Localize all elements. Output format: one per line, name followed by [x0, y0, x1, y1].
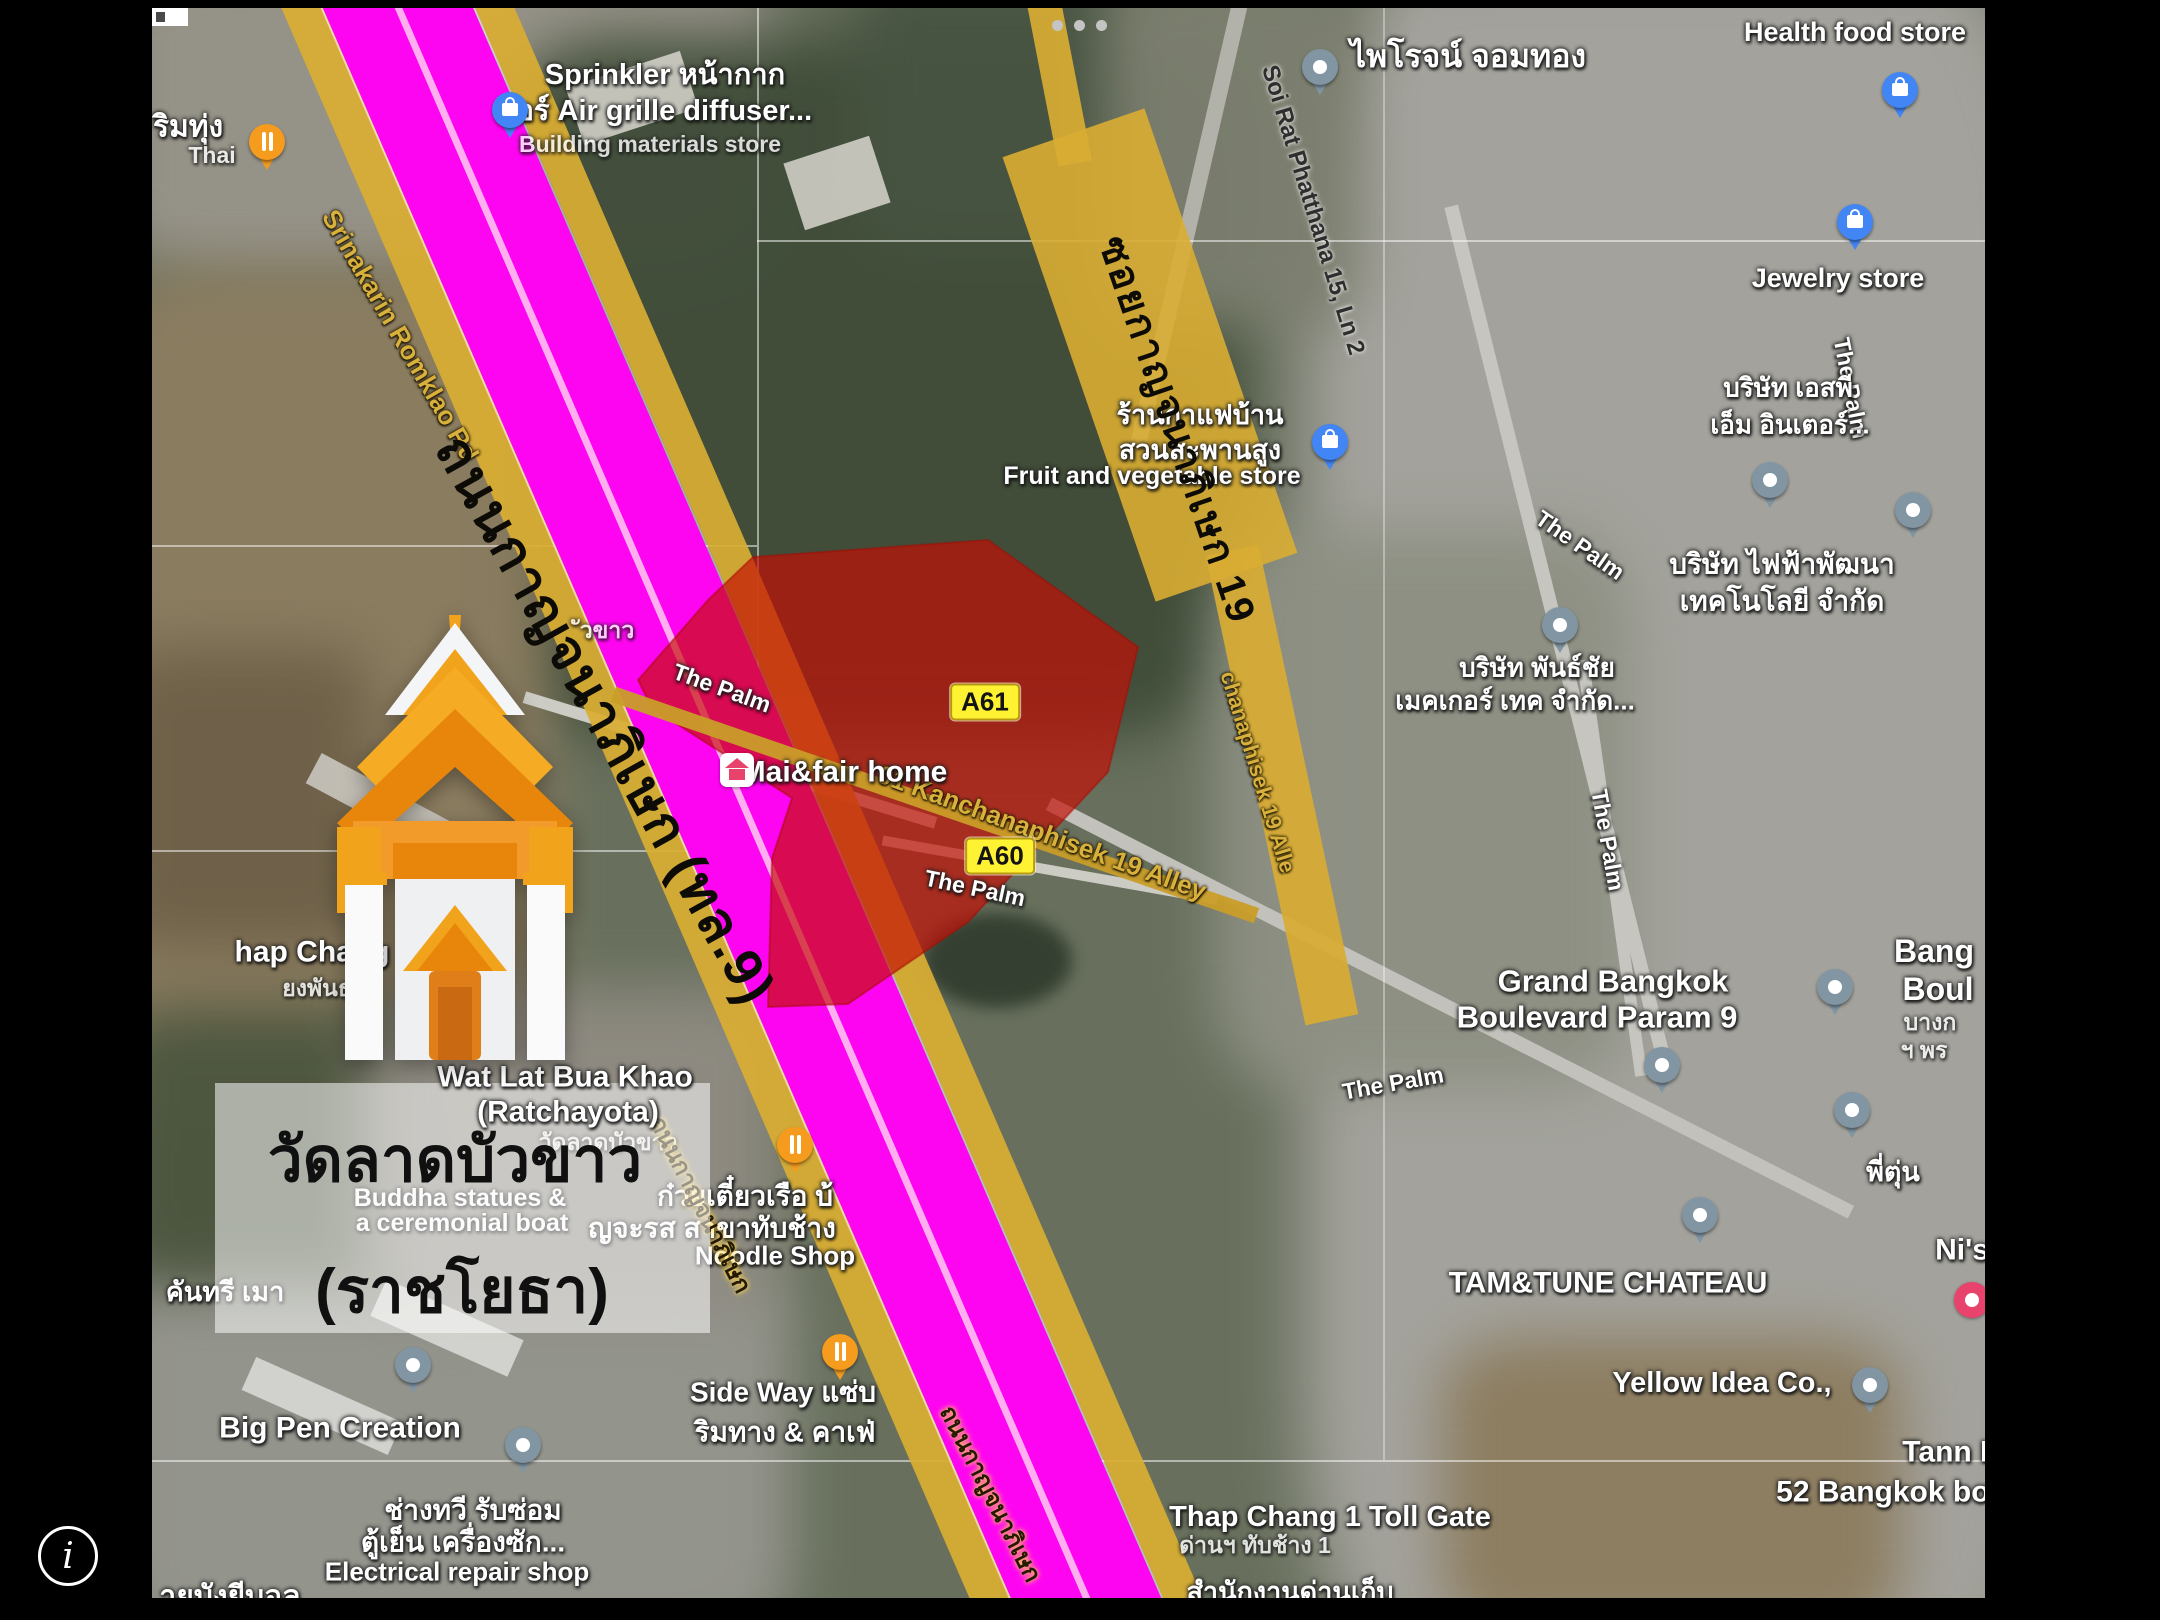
restaurant-pin-icon: [249, 124, 285, 170]
poi-label-phan-chai-1: บริษัท พันธ์ชัย: [1459, 654, 1615, 681]
poi-label-tam-tune: TAM&TUNE CHATEAU: [1449, 1267, 1768, 1299]
place-pin-icon: [1302, 49, 1338, 95]
poi-label-grand-bangkok-1: Grand Bangkok: [1498, 966, 1729, 999]
store-pin-icon: [1882, 72, 1918, 118]
poi-label-bangkok-blvd-1: Bang: [1894, 935, 1974, 969]
home-pin-icon: [720, 753, 754, 787]
place-pin-icon: [1852, 1367, 1888, 1413]
poi-label-bang-yi-bon: ายบังยีบอล: [159, 1581, 300, 1598]
place-pin-icon: [1895, 492, 1931, 538]
poi-label-fruit-store-1: ร้านกาแฟบ้าน: [1117, 401, 1284, 429]
poi-label-phan-chai-2: เมคเกอร์ เทค จำกัด...: [1395, 687, 1635, 714]
poi-label-toll-office: สำนักงานด่านเก็บ: [1186, 1578, 1393, 1598]
poi-label-wat-1: Wat Lat Bua Khao: [437, 1061, 693, 1093]
screenshot-root: Srinakarin Romklao Rd Soi Rat Phatthana …: [0, 0, 2160, 1620]
poi-label-sprinkler-3: Building materials store: [519, 132, 781, 156]
poi-label-fai-fa-1: บริษัท ไฟฟ้าพัฒนา: [1669, 549, 1895, 578]
pink-place-pin-icon: [1954, 1282, 1985, 1318]
poi-label-sp-inter-2: เอ็ม อินเตอร์...: [1710, 411, 1869, 438]
place-pin-icon: [505, 1427, 541, 1473]
place-pin-icon: [1542, 607, 1578, 653]
restaurant-pin-icon: [777, 1127, 813, 1173]
poi-label-chang-thawi-1: ช่างทวี รับซ่อม: [384, 1495, 561, 1524]
place-pin-icon: [395, 1347, 431, 1393]
plot-badge-a61: A61: [950, 684, 1020, 721]
poi-label-fruit-store-3: Fruit and vegetable store: [1003, 463, 1300, 489]
poi-label-fai-fa-2: เทคโนโลยี จำกัด: [1680, 586, 1885, 615]
poi-label-pee-tun: พี่ตุ่น: [1866, 1158, 1920, 1186]
poi-label-bangkok-blvd-2: Boul: [1902, 973, 1973, 1007]
poi-label-chang-thawi-2: ตู้เย็น เครื่องซัก...: [361, 1527, 565, 1556]
poi-label-health-food: Health food store: [1744, 18, 1966, 46]
poi-label-thap-chang-toll-thai: ด่านฯ ทับช้าง 1: [1179, 1533, 1331, 1557]
plot-badge-a60: A60: [965, 838, 1035, 875]
poi-label-tann-1: Tann H: [1902, 1436, 1985, 1468]
poi-label-grand-bangkok-2: Boulevard Param 9: [1457, 1002, 1738, 1035]
poi-label-nis: Ni's: [1935, 1234, 1985, 1266]
place-pin-icon: [1752, 462, 1788, 508]
callout-title-line2: (ราชโยธา): [315, 1242, 609, 1340]
poi-label-rim-thung-en: Thai: [188, 143, 235, 167]
poi-label-side-way-2: ริมทาง & คาเฟ่: [695, 1417, 876, 1446]
poi-label-thap-chang-toll: Thap Chang 1 Toll Gate: [1169, 1502, 1491, 1532]
poi-label-sprinkler-1: Sprinkler หน้ากาก: [545, 60, 785, 90]
callout-title-line1: วัดลาดบัวขาว: [268, 1111, 642, 1209]
poi-label-sprinkler-2: แอร์ Air grille diffuser...: [498, 96, 812, 126]
poi-label-jewelry: Jewelry store: [1752, 264, 1925, 292]
place-pin-icon: [1834, 1092, 1870, 1138]
poi-label-big-pen: Big Pen Creation: [219, 1412, 461, 1444]
poi-label-side-way-1: Side Way แซ่บ: [690, 1377, 876, 1406]
place-pin-icon: [1817, 969, 1853, 1015]
restaurant-pin-icon: [822, 1334, 858, 1380]
place-pin-icon: [1682, 1197, 1718, 1243]
info-button[interactable]: i: [38, 1526, 98, 1586]
poi-label-bangkok-blvd-3: บางก: [1904, 1010, 1957, 1034]
poi-label-yellow-idea: Yellow Idea Co.,: [1612, 1368, 1831, 1398]
store-pin-icon: [492, 92, 528, 138]
poi-label-tann-2: 52 Bangkok bou: [1776, 1476, 1985, 1508]
poi-label-rim-thung: ริมทุ่ง: [153, 111, 223, 143]
store-pin-icon: [1837, 204, 1873, 250]
poi-label-mai-fair: Mai&fair home: [741, 756, 948, 788]
more-options-icon[interactable]: [1052, 17, 1122, 39]
satellite-map[interactable]: Srinakarin Romklao Rd Soi Rat Phatthana …: [152, 8, 1985, 1598]
place-pin-icon: [1644, 1047, 1680, 1093]
temple-icon: [335, 615, 575, 1060]
store-pin-icon: [1312, 424, 1348, 470]
poi-label-phairot: ไพโรจน์ จอมทอง: [1350, 40, 1586, 74]
viewer-corner-tab: [152, 8, 188, 26]
poi-label-chang-thawi-3: Electrical repair shop: [325, 1558, 589, 1585]
poi-label-bangkok-blvd-4: ฯ พร: [1901, 1038, 1948, 1062]
poi-label-sp-inter-1: บริษัท เอสพี: [1723, 374, 1852, 401]
